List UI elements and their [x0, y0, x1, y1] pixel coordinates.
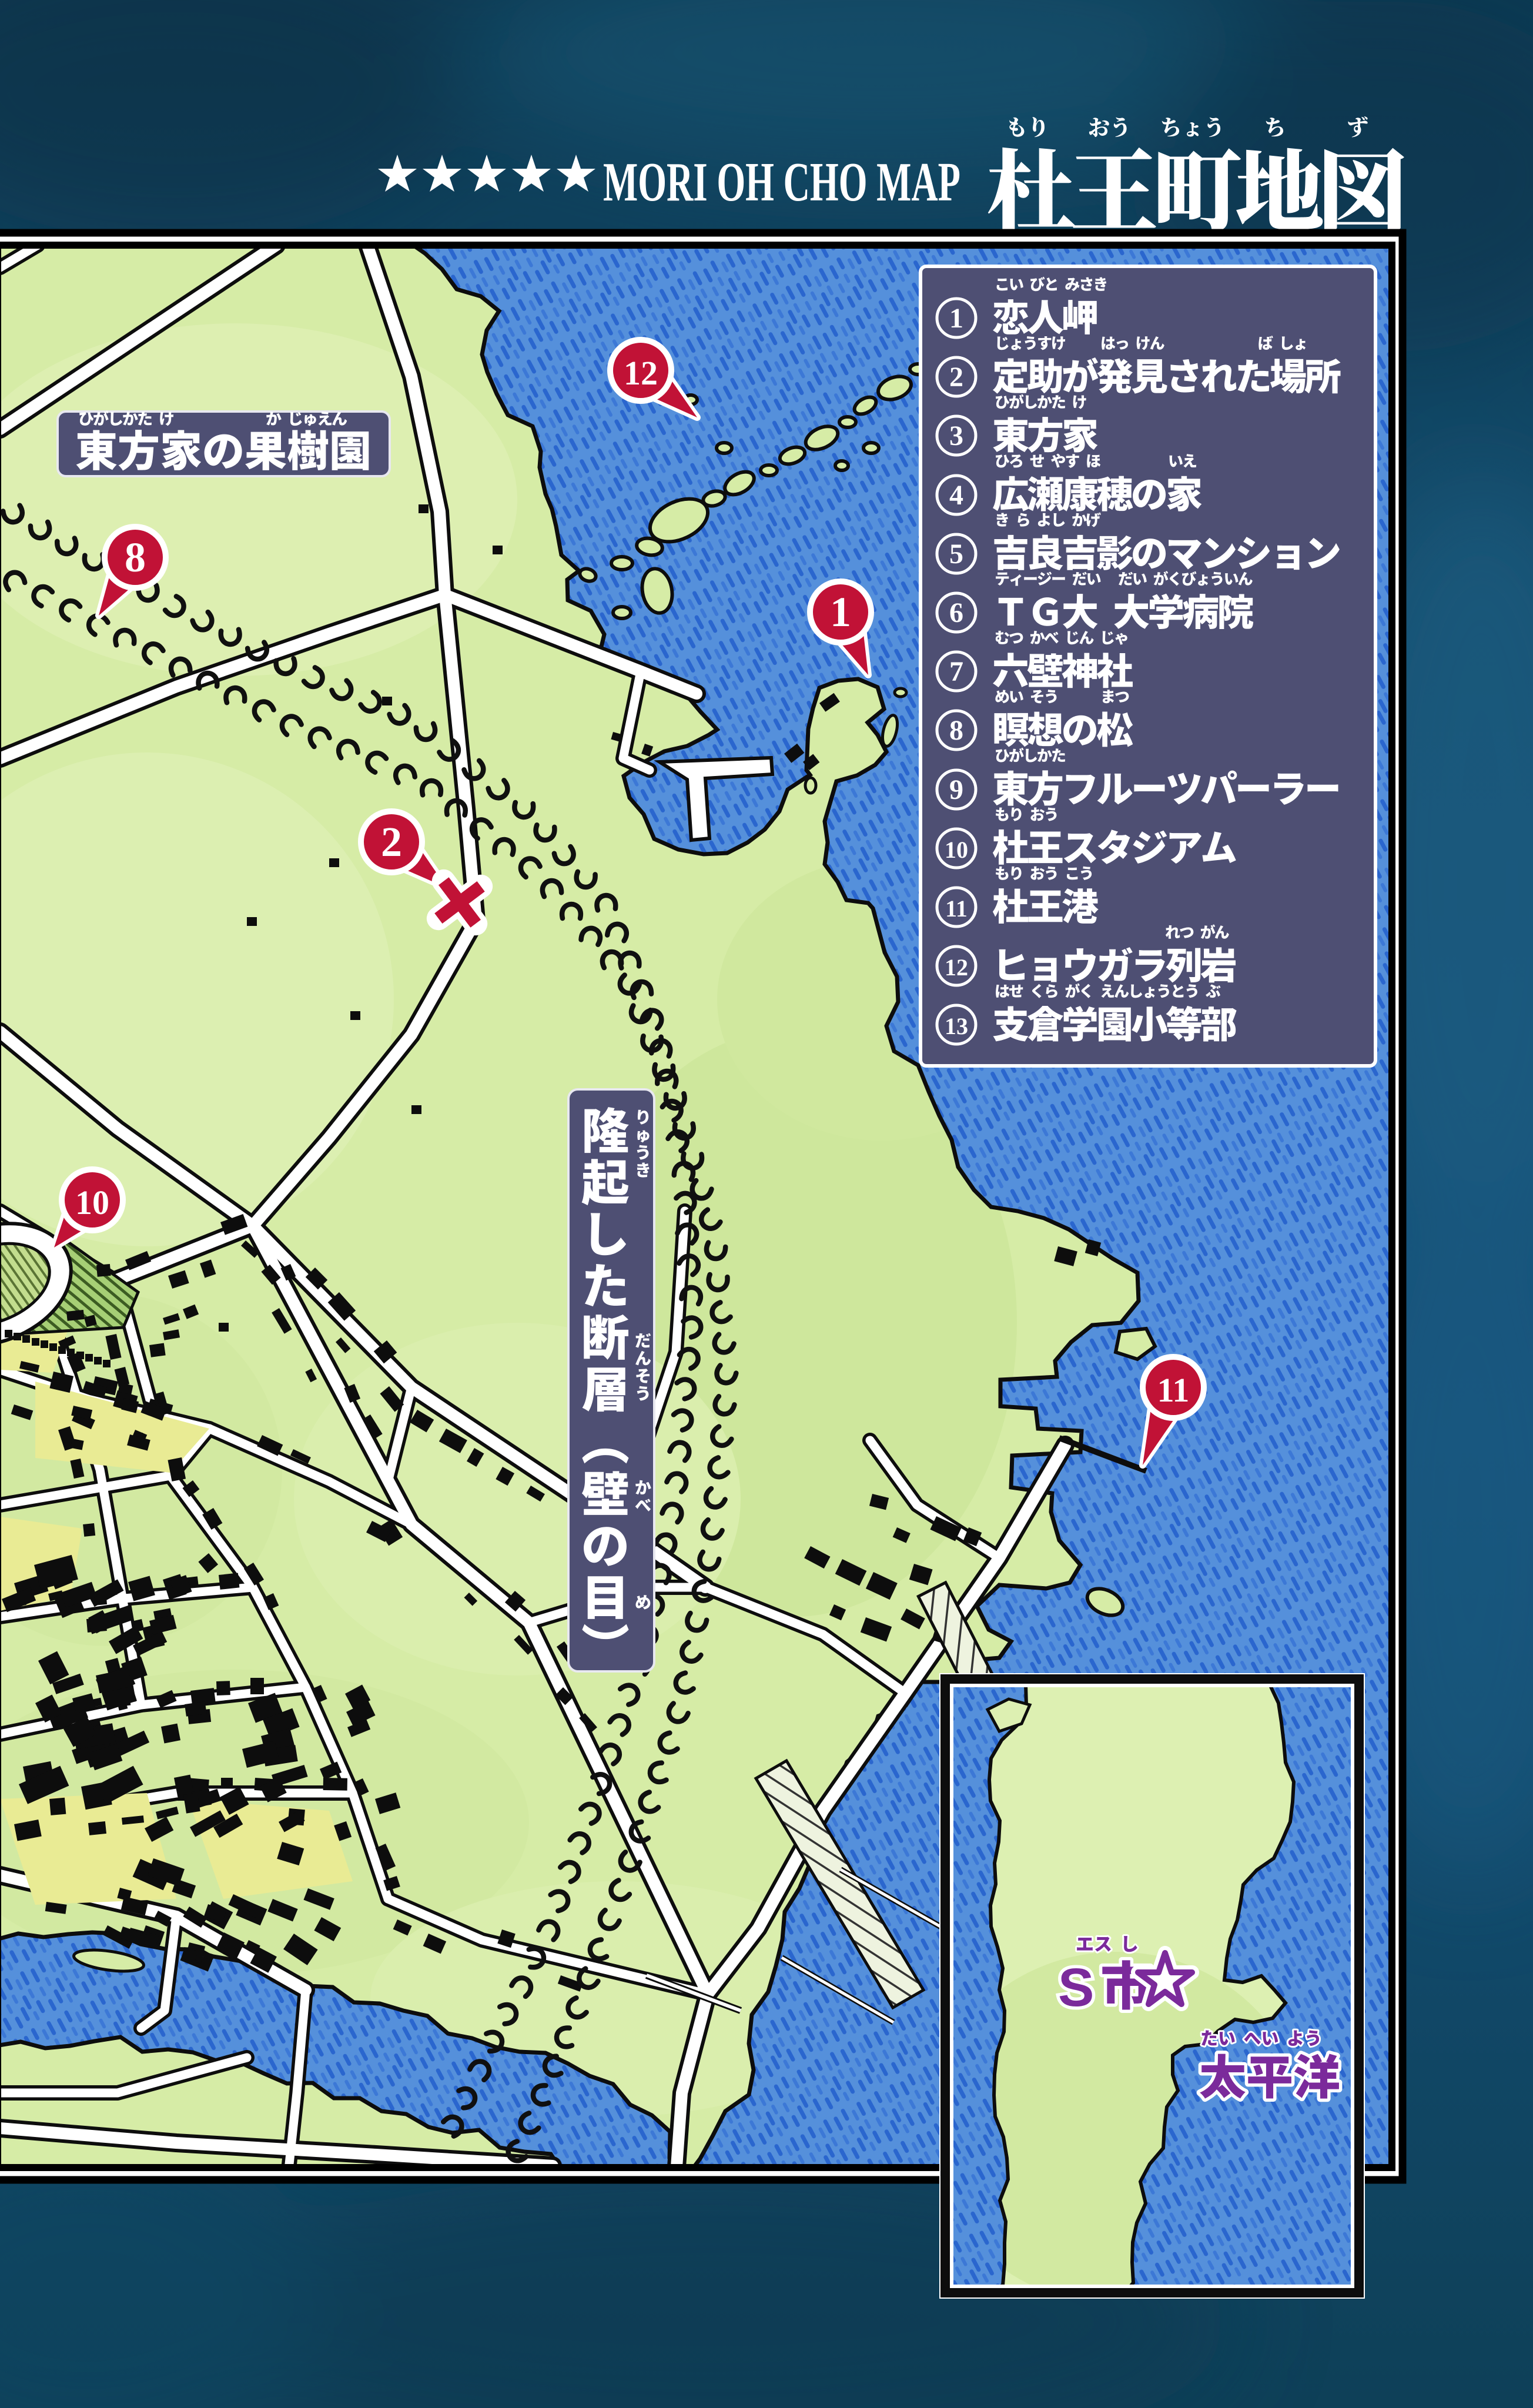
svg-text:8: 8 [949, 715, 963, 746]
svg-text:8: 8 [125, 534, 146, 581]
svg-text:12: 12 [945, 954, 968, 981]
svg-text:2: 2 [949, 362, 963, 393]
svg-text:12: 12 [624, 354, 658, 392]
svg-text:9: 9 [949, 774, 963, 805]
svg-text:2: 2 [381, 818, 402, 865]
svg-text:11: 11 [945, 895, 968, 922]
svg-text:S: S [1058, 1958, 1094, 2018]
svg-text:5: 5 [949, 539, 963, 570]
svg-text:MORI OH CHO MAP: MORI OH CHO MAP [603, 152, 960, 213]
svg-text:6: 6 [949, 597, 963, 628]
svg-text:4: 4 [949, 480, 963, 511]
svg-text:10: 10 [75, 1183, 109, 1222]
svg-text:10: 10 [945, 837, 968, 863]
svg-text:1: 1 [949, 303, 963, 334]
svg-text:13: 13 [945, 1013, 968, 1039]
svg-text:1: 1 [830, 588, 851, 636]
svg-text:3: 3 [949, 420, 963, 451]
svg-text:7: 7 [949, 656, 963, 687]
svg-text:11: 11 [1157, 1371, 1190, 1409]
